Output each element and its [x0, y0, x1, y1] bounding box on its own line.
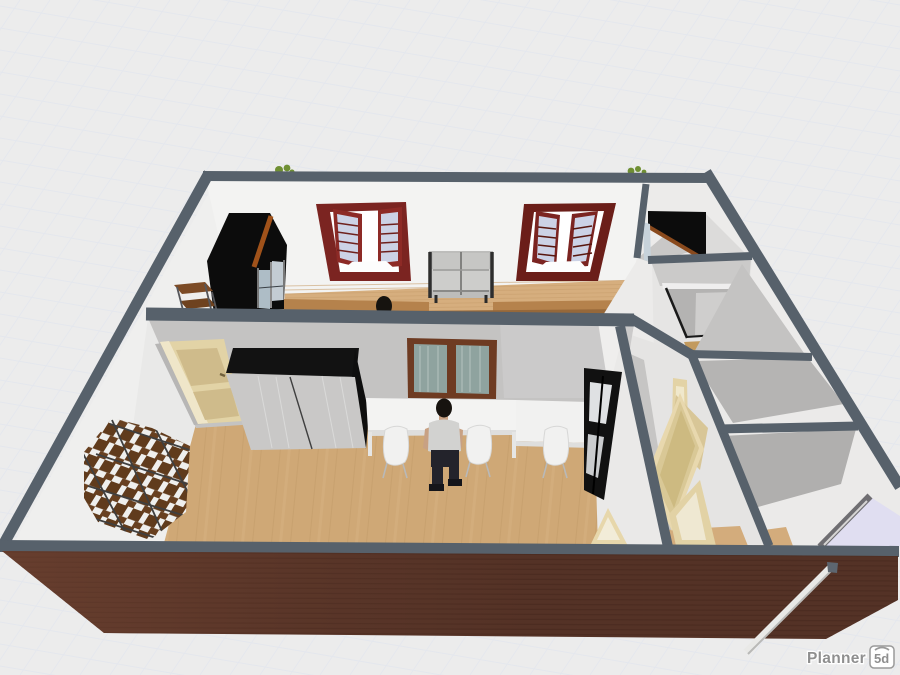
- svg-text:5d: 5d: [874, 651, 889, 666]
- svg-text:Planner: Planner: [807, 650, 866, 667]
